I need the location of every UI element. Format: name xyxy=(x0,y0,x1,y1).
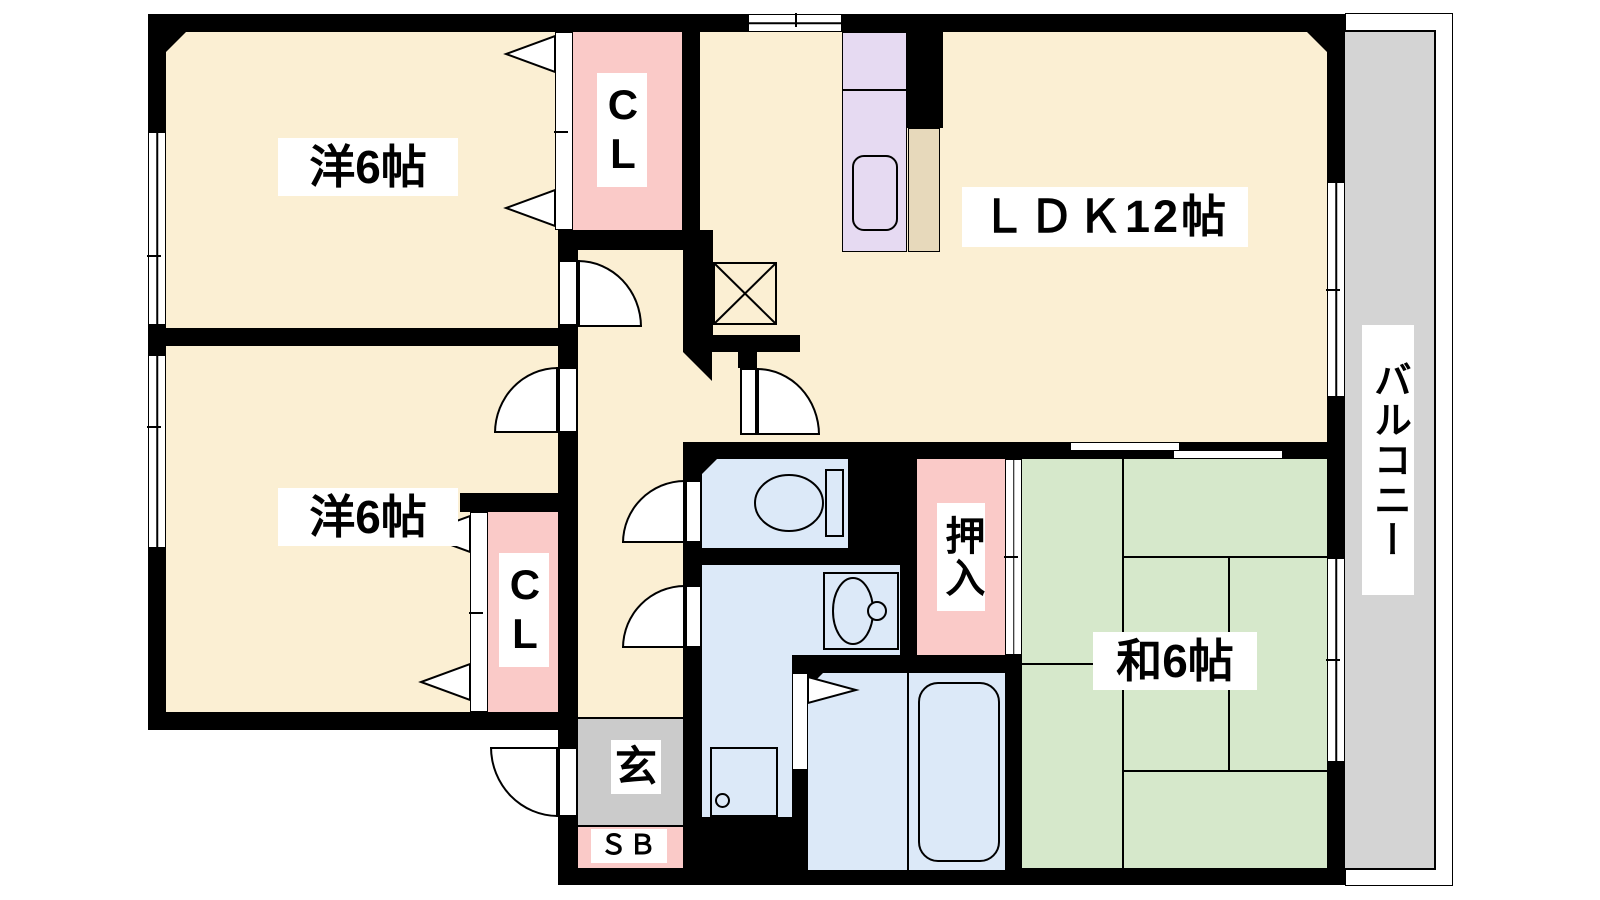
room-label-text: 洋6帖 xyxy=(309,144,427,191)
room-label-text: 和6帖 xyxy=(1116,638,1234,685)
floorplan: 洋6帖 洋6帖 ＬＤＫ12帖 和6帖 CL CL 押入 玄 ＳＢ バルコニー xyxy=(0,0,1600,900)
bath-door-triangle xyxy=(808,677,856,703)
folding-door-triangle xyxy=(421,664,470,700)
folding-door-triangle xyxy=(506,190,555,226)
toilet-tank xyxy=(826,470,843,536)
room-label-balcony: バルコニー xyxy=(1362,325,1414,595)
room-label-text: 玄 xyxy=(615,746,657,789)
room-label-text: CL xyxy=(601,81,644,179)
room-label-closet-top: CL xyxy=(597,73,647,187)
room-label-text: 押入 xyxy=(941,515,982,599)
toilet-bowl xyxy=(755,475,823,531)
room-label-text: ＬＤＫ12帖 xyxy=(981,194,1229,240)
room-label-tatami: 和6帖 xyxy=(1093,632,1257,690)
room-label-ldk: ＬＤＫ12帖 xyxy=(962,187,1248,247)
folding-door-triangle xyxy=(506,36,555,72)
room-label-bedroom-top: 洋6帖 xyxy=(278,138,458,196)
room-label-entrance: 玄 xyxy=(611,740,661,794)
room-label-oshiire: 押入 xyxy=(937,503,985,611)
room-label-text: 洋6帖 xyxy=(309,494,427,541)
fixture-overlay xyxy=(0,0,1600,900)
room-label-text: ＳＢ xyxy=(600,832,658,860)
vanity-faucet xyxy=(868,602,886,620)
room-label-bedroom-bottom: 洋6帖 xyxy=(278,488,458,546)
room-label-closet-bottom: CL xyxy=(499,553,549,667)
room-label-text: バルコニー xyxy=(1369,360,1408,560)
room-label-text: CL xyxy=(503,561,546,659)
room-label-shoebox: ＳＢ xyxy=(591,829,667,863)
